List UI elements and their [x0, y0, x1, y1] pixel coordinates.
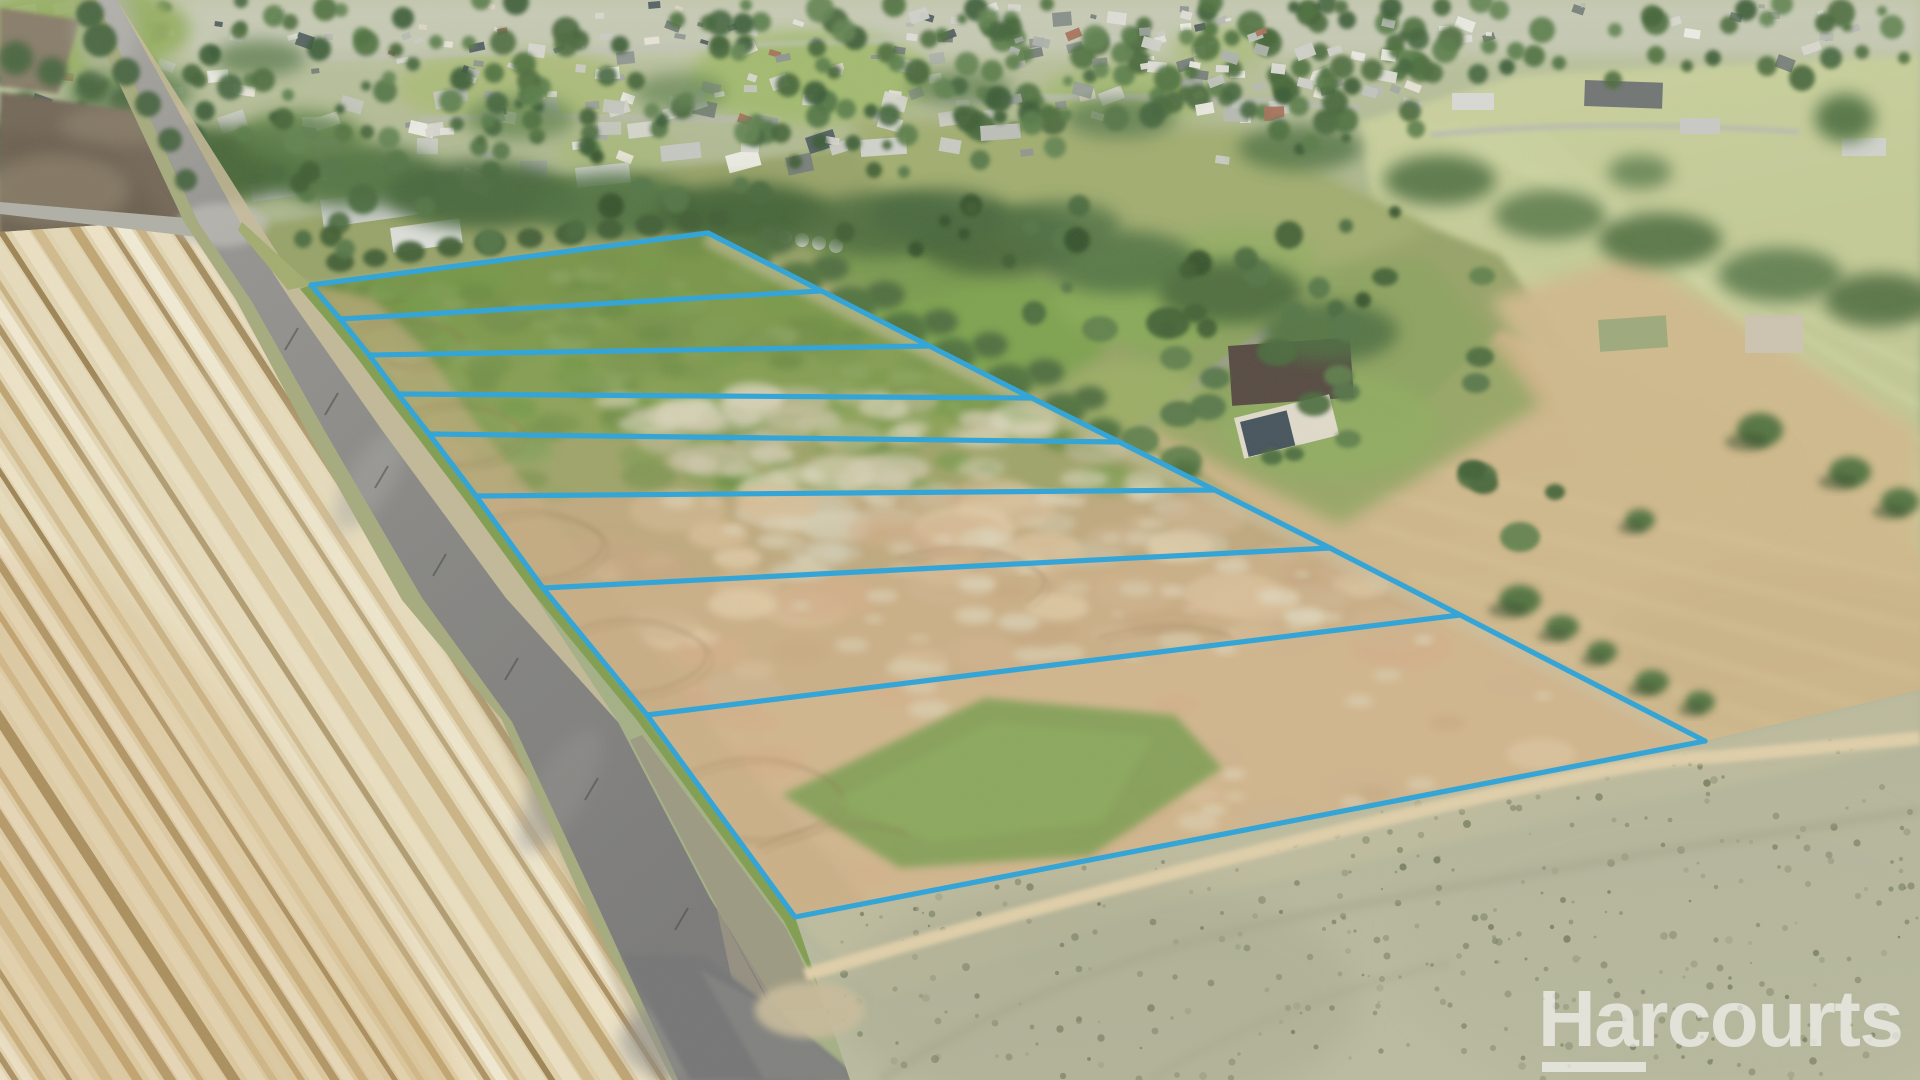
svg-text:Harcourts: Harcourts [1538, 974, 1902, 1063]
